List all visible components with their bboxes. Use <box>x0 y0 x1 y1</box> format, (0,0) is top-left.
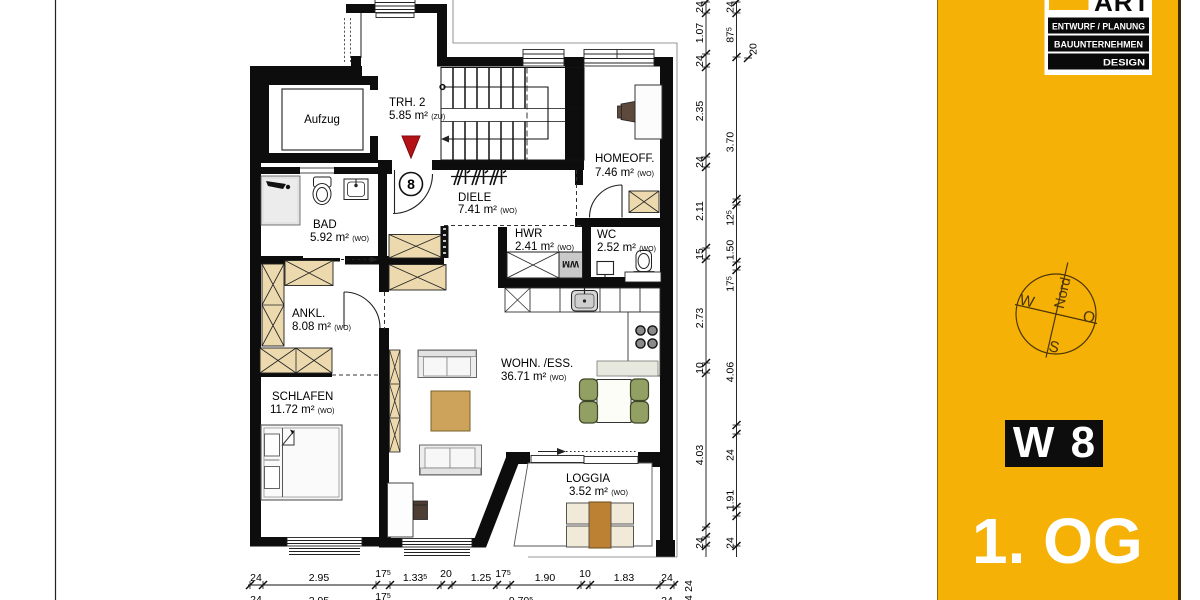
svg-text:24: 24 <box>725 449 737 461</box>
svg-text:WM: WM <box>562 258 579 269</box>
svg-text:24: 24 <box>725 1 737 13</box>
svg-text:LOGGIA: LOGGIA <box>566 473 610 485</box>
svg-text:1.90: 1.90 <box>535 572 556 584</box>
svg-text:BAUUNTERNEHMEN: BAUUNTERNEHMEN <box>1054 40 1143 50</box>
svg-text:4.06: 4.06 <box>725 362 737 383</box>
svg-text:24: 24 <box>725 537 737 549</box>
svg-text:2.95: 2.95 <box>309 595 330 600</box>
svg-text:1.83: 1.83 <box>614 572 635 584</box>
svg-text:10: 10 <box>579 568 591 580</box>
svg-text:DIELE: DIELE <box>458 192 492 204</box>
svg-text:10: 10 <box>694 362 706 374</box>
svg-text:1.91: 1.91 <box>725 490 737 511</box>
svg-text:2.11: 2.11 <box>694 201 706 221</box>
svg-text:1.50: 1.50 <box>725 240 737 261</box>
svg-text:24: 24 <box>250 594 262 600</box>
svg-text:W 8: W 8 <box>1013 418 1095 467</box>
svg-text:WOHN. /ESS.: WOHN. /ESS. <box>501 358 573 370</box>
svg-text:24: 24 <box>250 572 262 584</box>
svg-text:3.70: 3.70 <box>725 132 737 153</box>
svg-text:24: 24 <box>694 156 706 168</box>
svg-text:1. OG: 1. OG <box>972 505 1143 577</box>
svg-text:20: 20 <box>440 568 452 580</box>
svg-text:20: 20 <box>748 43 760 55</box>
svg-text:2.35: 2.35 <box>694 101 706 122</box>
svg-text:4.03: 4.03 <box>694 445 706 466</box>
svg-text:Aufzug: Aufzug <box>304 114 340 126</box>
svg-text:HWR: HWR <box>515 228 542 240</box>
svg-text:SCHLAFEN: SCHLAFEN <box>272 391 333 403</box>
svg-text:24: 24 <box>661 595 673 600</box>
svg-text:2.95: 2.95 <box>309 572 330 584</box>
svg-text:2.73: 2.73 <box>694 308 706 329</box>
svg-text:ENTWURF / PLANUNG: ENTWURF / PLANUNG <box>1052 22 1145 32</box>
svg-text:HOMEOFF.: HOMEOFF. <box>595 153 654 165</box>
svg-text:24: 24 <box>683 595 695 600</box>
svg-text:ART: ART <box>1094 0 1150 17</box>
svg-text:WC: WC <box>597 229 616 241</box>
svg-text:1.07: 1.07 <box>694 23 706 44</box>
svg-text:15: 15 <box>694 248 706 260</box>
svg-text:24: 24 <box>683 580 695 592</box>
svg-text:1.25: 1.25 <box>471 572 492 584</box>
svg-text:24: 24 <box>694 1 706 13</box>
svg-text:8: 8 <box>407 176 415 192</box>
svg-text:24: 24 <box>661 572 673 584</box>
svg-text:ANKL.: ANKL. <box>292 308 325 320</box>
svg-text:BAD: BAD <box>313 219 337 231</box>
svg-text:TRH. 2: TRH. 2 <box>389 97 425 109</box>
svg-text:175: 175 <box>375 591 391 600</box>
svg-text:DESIGN: DESIGN <box>1103 58 1145 68</box>
svg-text:24: 24 <box>694 55 706 67</box>
svg-text:24: 24 <box>694 537 706 549</box>
